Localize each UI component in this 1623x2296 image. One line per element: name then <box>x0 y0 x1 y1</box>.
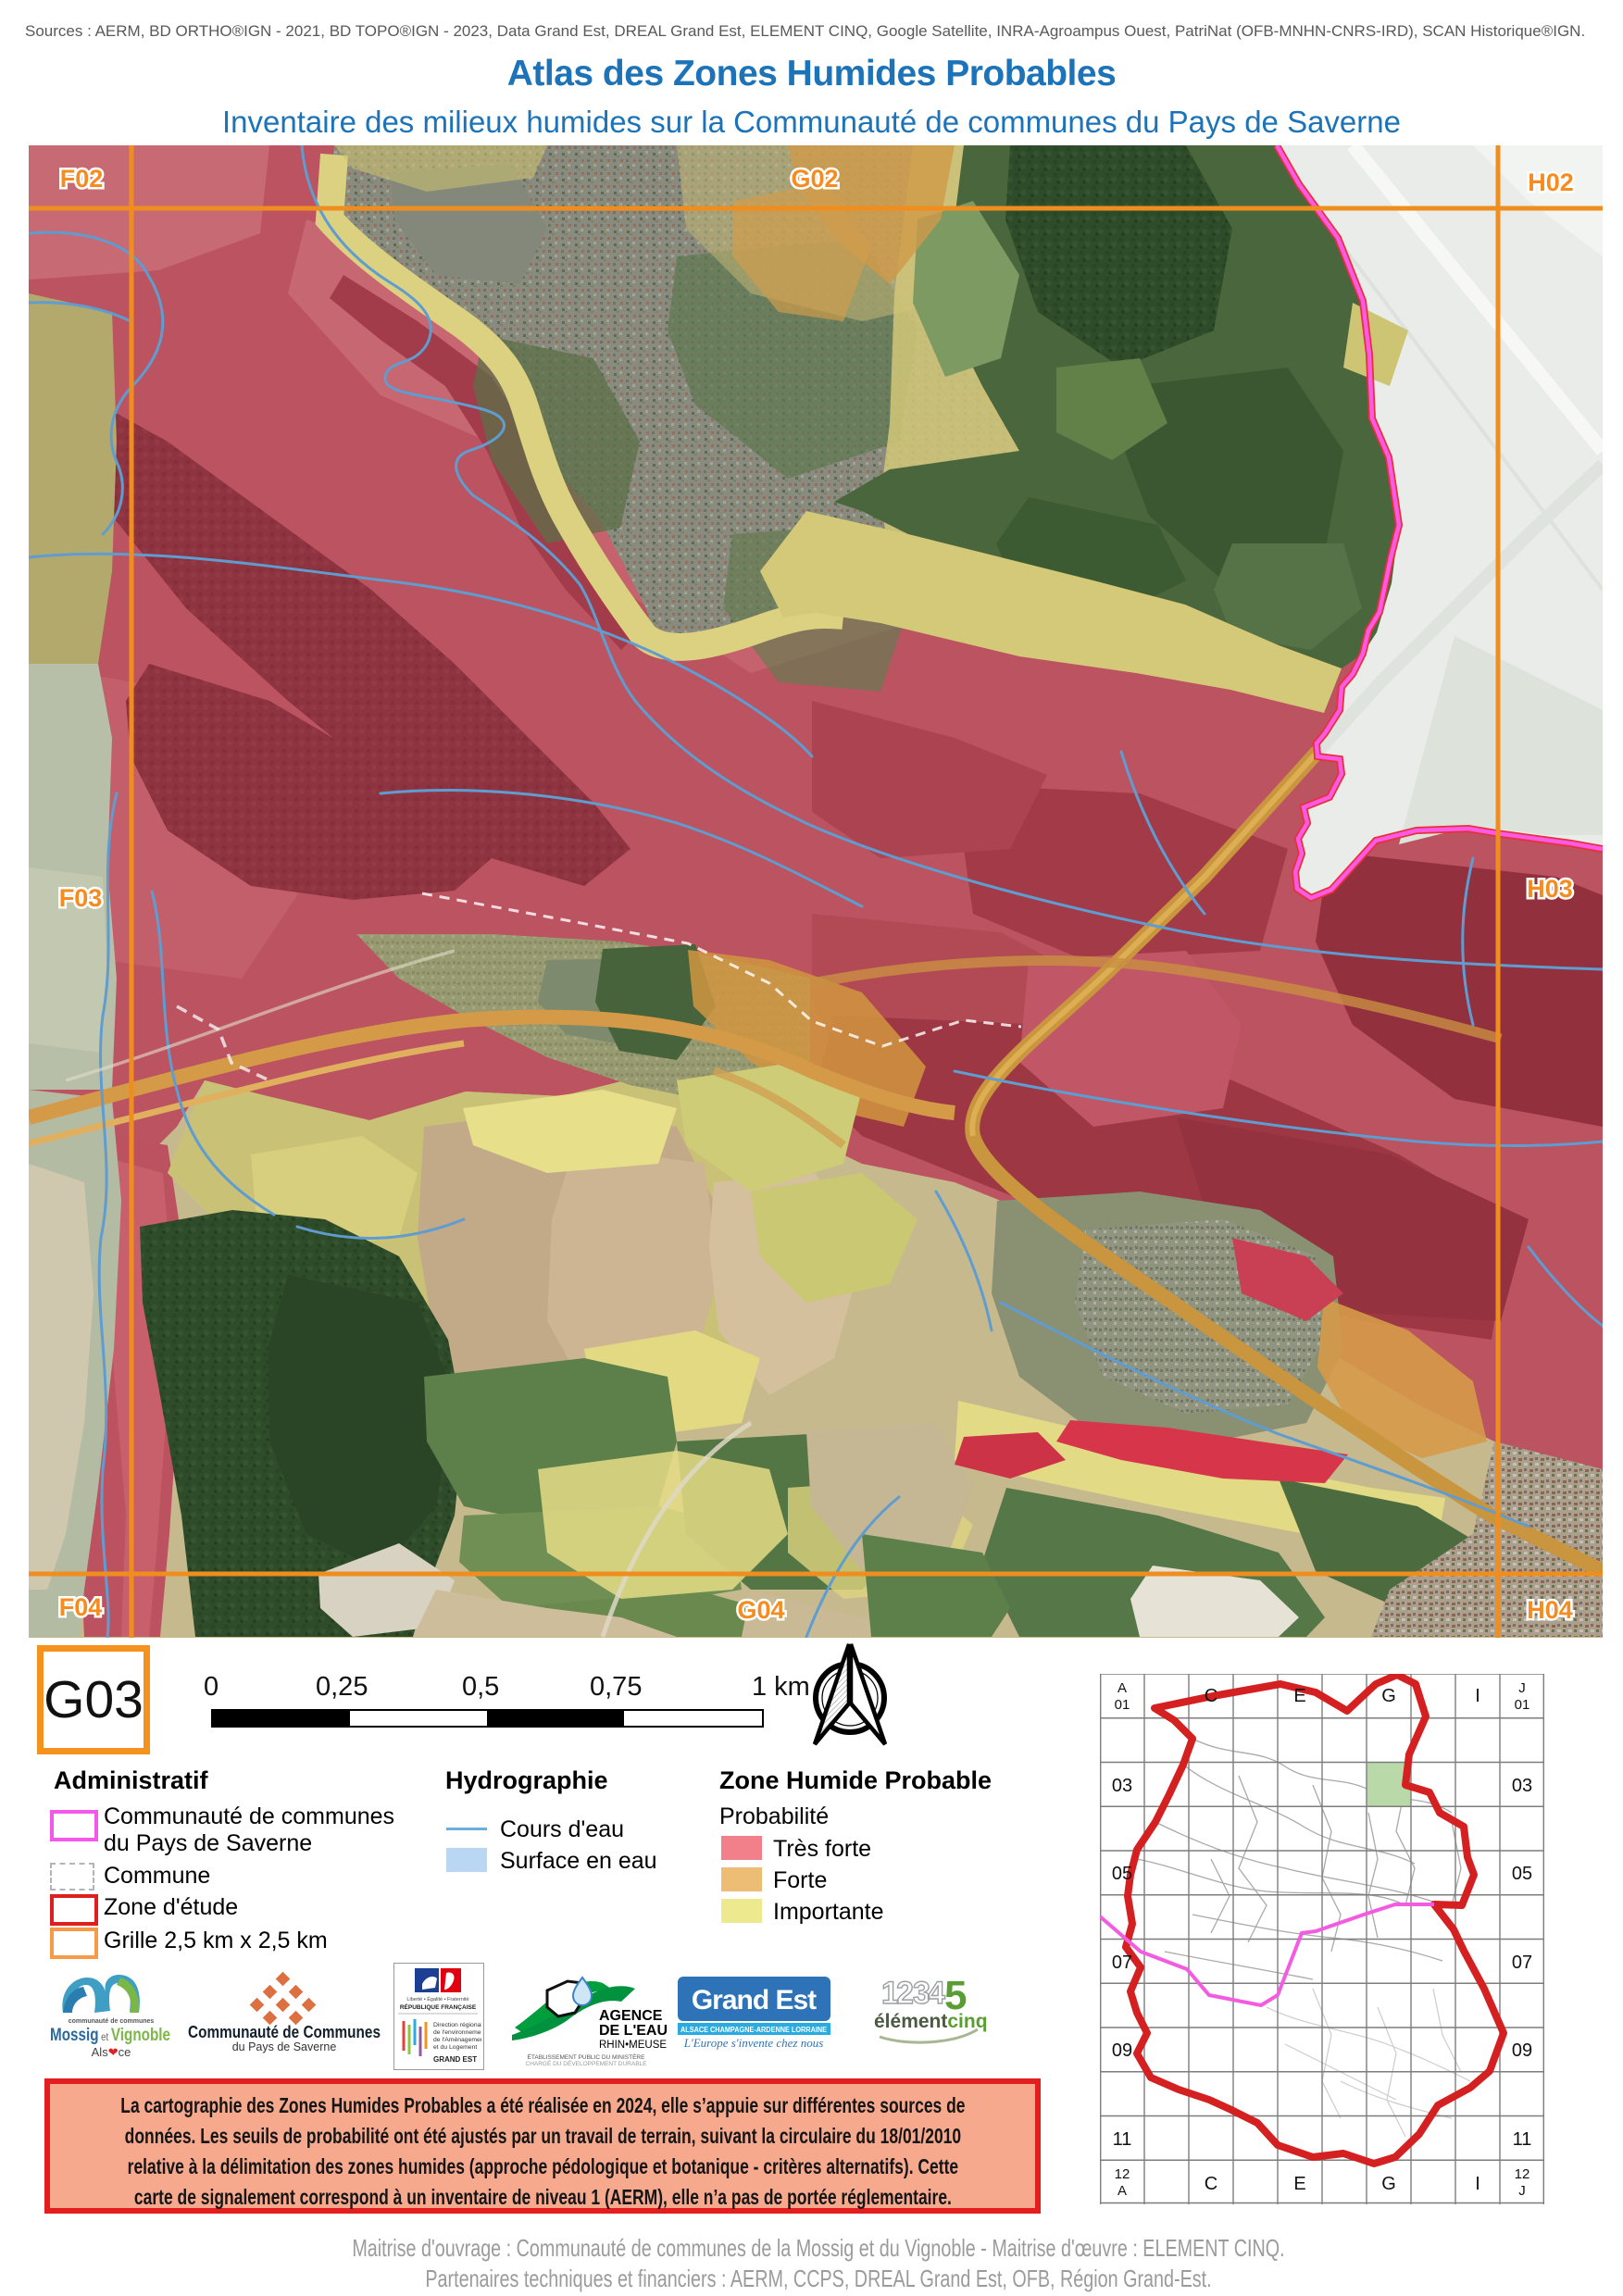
svg-text:ÉTABLISSEMENT PUBLIC DU MINIST: ÉTABLISSEMENT PUBLIC DU MINISTÈRE <box>528 2053 646 2061</box>
svg-text:07: 07 <box>1112 1953 1132 1973</box>
svg-text:H03: H03 <box>1527 875 1573 903</box>
svg-text:élémentcinq: élémentcinq <box>874 2011 988 2032</box>
svg-text:GRAND EST: GRAND EST <box>433 2055 477 2064</box>
svg-text:A: A <box>1117 2183 1127 2199</box>
svg-text:I: I <box>1475 2174 1480 2194</box>
svg-text:F03: F03 <box>59 884 103 912</box>
svg-text:I: I <box>1475 1686 1480 1706</box>
svg-text:G04: G04 <box>737 1596 784 1624</box>
svg-text:RÉPUBLIQUE FRANÇAISE: RÉPUBLIQUE FRANÇAISE <box>400 2003 477 2011</box>
svg-text:Mossig et Vignoble: Mossig et Vignoble <box>50 2026 170 2045</box>
svg-text:E: E <box>1293 2174 1305 2194</box>
svg-text:CHARGÉ DU DÉVELOPPEMENT DURABL: CHARGÉ DU DÉVELOPPEMENT DURABLE <box>526 2059 648 2066</box>
svg-text:H04: H04 <box>1527 1596 1573 1624</box>
svg-text:H02: H02 <box>1528 168 1574 196</box>
svg-text:05: 05 <box>1112 1864 1132 1884</box>
svg-text:11: 11 <box>1113 2129 1132 2150</box>
svg-text:12: 12 <box>1515 2166 1530 2182</box>
svg-text:de l'Aménagement: de l'Aménagement <box>433 2037 481 2043</box>
svg-text:05: 05 <box>1512 1864 1532 1884</box>
svg-text:G: G <box>1381 2174 1396 2194</box>
svg-text:ALSACE CHAMPAGNE-ARDENNE LORRA: ALSACE CHAMPAGNE-ARDENNE LORRAINE <box>680 2026 828 2034</box>
svg-text:G: G <box>1381 1686 1396 1706</box>
svg-text:01: 01 <box>1115 1697 1130 1713</box>
svg-text:11: 11 <box>1513 2129 1532 2150</box>
svg-text:12: 12 <box>1115 2166 1130 2182</box>
svg-text:de l'environnement,: de l'environnement, <box>433 2029 481 2036</box>
svg-text:C: C <box>1205 2174 1217 2194</box>
svg-text:A: A <box>1117 1680 1127 1696</box>
svg-text:4: 4 <box>928 1976 945 2011</box>
svg-text:Als❤ce: Als❤ce <box>92 2045 131 2059</box>
svg-text:J: J <box>1518 1680 1526 1696</box>
svg-text:F02: F02 <box>60 165 104 193</box>
svg-text:Grand Est: Grand Est <box>692 1985 817 2015</box>
svg-text:09: 09 <box>1112 2040 1132 2061</box>
svg-text:03: 03 <box>1512 1776 1532 1796</box>
svg-text:09: 09 <box>1512 2040 1532 2061</box>
svg-text:Direction régionale: Direction régionale <box>433 2022 481 2028</box>
svg-text:07: 07 <box>1512 1953 1532 1973</box>
svg-text:Liberté • Égalité • Fraternité: Liberté • Égalité • Fraternité <box>406 1996 468 2003</box>
svg-text:E: E <box>1293 1686 1305 1706</box>
svg-text:2: 2 <box>896 1976 914 2011</box>
svg-text:communauté de communes: communauté de communes <box>69 2018 155 2025</box>
svg-text:du Pays de Saverne: du Pays de Saverne <box>232 2040 337 2053</box>
svg-text:RHIN•MEUSE: RHIN•MEUSE <box>599 2040 667 2051</box>
svg-text:DE L'EAU: DE L'EAU <box>599 2023 668 2039</box>
svg-text:et du Logement: et du Logement <box>433 2044 477 2051</box>
svg-text:C: C <box>1205 1686 1217 1706</box>
svg-text:03: 03 <box>1112 1776 1132 1796</box>
svg-text:F04: F04 <box>59 1593 103 1621</box>
svg-text:Communauté de Communes: Communauté de Communes <box>188 2022 381 2041</box>
svg-text:L'Europe s'invente chez nous: L'Europe s'invente chez nous <box>683 2036 824 2050</box>
svg-text:AGENCE: AGENCE <box>599 2008 663 2024</box>
svg-text:J: J <box>1518 2183 1526 2199</box>
svg-text:G02: G02 <box>791 165 838 193</box>
svg-text:01: 01 <box>1515 1697 1530 1713</box>
